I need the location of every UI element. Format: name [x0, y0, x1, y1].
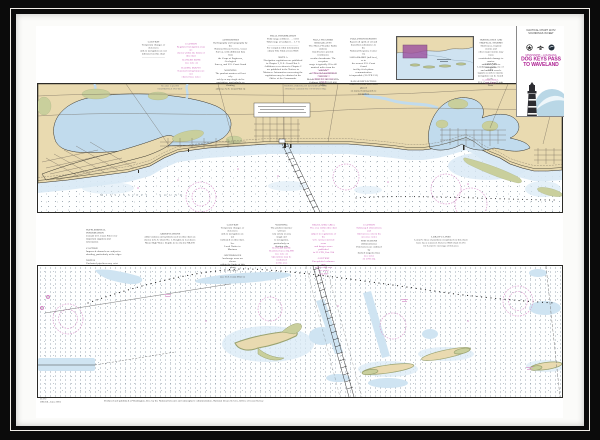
note-fish-havens-1: CAUTION Submerged obstructions and fish …	[355, 224, 383, 239]
note-hurricanes: HURRICANES AND TROPICAL STORMS Hurricane…	[477, 39, 505, 73]
note-loran: LORAN-C LINES Loran-C lines of position …	[412, 236, 470, 248]
note-fish-havens-3: (see note) 33 CFR 334	[355, 255, 383, 261]
chart-coverage-highlight	[403, 45, 427, 58]
note-danger-zone: DANGER ZONE (see note A)	[180, 59, 203, 65]
note-pilings-caution: CAUTION Submerged pilings and obstructio…	[310, 69, 337, 84]
note-tidal-information: TIDAL INFORMATION Tidal range at Biloxi …	[260, 35, 306, 81]
boundary-line	[546, 266, 560, 397]
eagle-emblem-icon	[536, 44, 545, 51]
note-regulated-areas: CAUTION Regulated navigation areas are s…	[175, 43, 207, 58]
note-danger-restricted: DANGER ZONE Restricted area 334.980 (see…	[269, 247, 294, 265]
lower-panel-map	[38, 266, 562, 397]
chart-title-line-1: DOG KEYS PASS	[517, 57, 564, 62]
commerce-seal-icon	[526, 44, 533, 51]
chart-title-line-2: TO WAVELAND	[517, 62, 564, 67]
soundings-line: SOUNDINGS IN FEET	[517, 32, 564, 35]
boxed-note	[254, 103, 310, 117]
upper-chart-panel: MISSISSIPPI SOUND	[37, 83, 563, 213]
framed-nautical-chart: MISSISSIPPI SOUND	[0, 0, 600, 440]
agency-logos	[517, 44, 564, 52]
note-caution-aids: CAUTION Temporary changes or defects in …	[138, 41, 169, 59]
upper-panel-map: MISSISSIPPI SOUND	[38, 84, 562, 212]
note-fish-havens-2: FISH HAVENS (Obstructions) Fish havens a…	[355, 240, 383, 255]
inset-locator-map	[396, 36, 474, 80]
west-channel	[38, 284, 230, 365]
note-abbreviations: ABBREVIATIONS Abbreviations and symbols …	[143, 233, 197, 245]
ship-islands	[362, 345, 562, 377]
note-supplemental: SUPPLEMENTAL INFORMATION Consult U.S. Co…	[86, 229, 122, 266]
footer-credit: Produced and published at Washington, D.…	[104, 400, 294, 403]
chart-print: MISSISSIPPI SOUND	[36, 26, 563, 418]
chart-title-block: NAUTICAL CHART 11372 SOUNDINGS IN FEET M…	[516, 26, 564, 117]
magenta-labels	[164, 294, 533, 370]
footer-edition: 11372 59th Ed., June 2016	[40, 398, 74, 404]
lighthouse-icon	[522, 82, 542, 118]
inset-map-art	[397, 37, 473, 79]
sound-label: MISSISSIPPI SOUND	[100, 193, 185, 197]
note-warning-middle: WARNING The prudent mariner will not rel…	[269, 224, 294, 248]
note-weather-broadcasts: NOAA WEATHER BROADCASTS The NOAA Weather…	[307, 39, 339, 88]
compass-circles-upper	[186, 164, 487, 212]
noaa-seal-icon	[548, 44, 555, 51]
lower-chart-panel	[37, 265, 563, 398]
note-racing-buoys: RACING BUOYS Seasonal racing buoys are n…	[176, 67, 206, 79]
inset-islands	[410, 63, 466, 68]
